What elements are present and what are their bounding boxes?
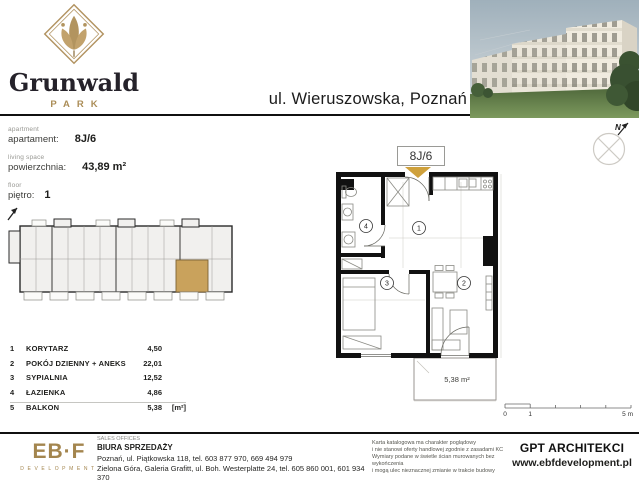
- field-apartment: apartment apartament: 8J/6: [8, 126, 208, 145]
- room-area: 12,52: [128, 373, 162, 382]
- apartment-info: apartment apartament: 8J/6 living space …: [8, 126, 208, 210]
- building-photo: [470, 0, 639, 118]
- room-marker-3-label: 3: [385, 281, 389, 288]
- sofa: [432, 308, 460, 350]
- bathroom-fixtures: [342, 186, 357, 247]
- room-name: ŁAZIENKA: [26, 388, 128, 397]
- room-name: SYPIALNIA: [26, 373, 128, 382]
- room-area: 4,86: [128, 388, 162, 397]
- field-label-en: living space: [8, 154, 208, 161]
- room-no: 4: [10, 388, 26, 397]
- website-link[interactable]: www.ebfdevelopment.pl: [512, 457, 632, 469]
- bed: [343, 278, 375, 330]
- brand-diamond-icon: [42, 2, 106, 66]
- table-row: 2 POKÓJ DZIENNY + ANEKS 22,01: [10, 359, 186, 374]
- north-arrow-icon: [8, 208, 17, 220]
- apartment-number-value: 8J/6: [75, 133, 96, 145]
- developer-logo: EB·F DEVELOPMENT: [20, 440, 98, 472]
- field-floor: floor piętro: 1: [8, 182, 208, 201]
- header-divider: [0, 114, 471, 116]
- room-area: 4,50: [128, 344, 162, 353]
- balcony-door: [441, 327, 469, 355]
- room-area: 22,01: [128, 359, 162, 368]
- table-row: 1 KORYTARZ 4,50: [10, 344, 186, 359]
- field-label-en: apartment: [8, 126, 208, 133]
- room-name: BALKON: [26, 403, 128, 412]
- room-unit: [m²]: [162, 403, 186, 412]
- sales-label-en: SALES OFFICES: [97, 436, 367, 442]
- room-marker-1-label: 1: [417, 226, 421, 233]
- dining-table: [433, 266, 457, 299]
- building-floor-overview: [4, 204, 240, 312]
- room-no: 1: [10, 344, 26, 353]
- field-living-space: living space powierzchnia: 43,89 m²: [8, 154, 208, 173]
- field-label-pl: powierzchnia:: [8, 162, 66, 173]
- kitchen-counter: [433, 177, 493, 190]
- catalog-card-page: Grunwald PARK ul. Wieruszowska, Poznań: [0, 0, 639, 480]
- balcony-area-label: 5,38 m²: [444, 375, 470, 384]
- coffee-table: [450, 310, 467, 334]
- room-name: KORYTARZ: [26, 344, 128, 353]
- table-row: 5 BALKON 5,38 [m²]: [10, 402, 186, 418]
- scale-tick-0: 0: [503, 411, 507, 418]
- unit-label: 8J/6: [397, 146, 445, 166]
- room-name: POKÓJ DZIENNY + ANEKS: [26, 359, 128, 368]
- sales-label-pl: BIURA SPRZEDAŻY: [97, 443, 367, 452]
- disclaimer-line: Karta katalogowa ma charakter poglądowy: [372, 440, 514, 447]
- radiator: [486, 276, 492, 310]
- wardrobe: [387, 178, 409, 206]
- disclaimer-line: i mogą ulec nieznacznej zmianie w trakci…: [372, 468, 514, 475]
- field-label-en: floor: [8, 182, 208, 189]
- room-no: 5: [10, 403, 26, 412]
- scale-tick-5m: 5 m: [622, 411, 633, 418]
- field-label-pl: piętro:: [8, 190, 34, 201]
- highlighted-unit[interactable]: [176, 260, 208, 292]
- developer-logo-text: EB·F: [20, 440, 98, 464]
- apartment-floor-plan: 5,38 m²: [333, 168, 503, 406]
- compass-icon: N: [588, 118, 634, 170]
- compass-north-label: N: [615, 123, 621, 132]
- disclaimer-line: i nie stanowi oferty handlowej zgodnie z…: [372, 447, 514, 454]
- brand-logo: Grunwald PARK: [8, 2, 140, 110]
- room-no: 2: [10, 359, 26, 368]
- sales-offices: SALES OFFICES BIURA SPRZEDAŻY Poznań, ul…: [97, 436, 367, 480]
- table-row: 3 SYPIALNIA 12,52: [10, 373, 186, 388]
- room-marker-2-label: 2: [462, 281, 466, 288]
- disclaimer-line: Wymiary podane w świetle ścian murowanyc…: [372, 454, 514, 468]
- room-no: 3: [10, 373, 26, 382]
- sales-address-zielona-gora: Zielona Góra, Galeria Grafitt, ul. Boh. …: [97, 464, 367, 480]
- brand-name: Grunwald: [8, 68, 140, 97]
- scale-tick-1: 1: [528, 411, 532, 418]
- rooms-table: 1 KORYTARZ 4,50 2 POKÓJ DZIENNY + ANEKS …: [10, 344, 186, 418]
- bedroom-closet: [343, 336, 381, 349]
- table-row: 4 ŁAZIENKA 4,86: [10, 388, 186, 403]
- brand-subtitle: PARK: [8, 99, 140, 110]
- balcony: 5,38 m²: [414, 358, 496, 400]
- footer-divider: [0, 432, 639, 434]
- legal-disclaimer: Karta katalogowa ma charakter poglądowy …: [372, 440, 514, 475]
- developer-logo-subtext: DEVELOPMENT: [20, 466, 98, 472]
- living-space-value: 43,89 m²: [82, 161, 126, 173]
- architect-name: GPT ARCHITEKCI: [512, 441, 632, 455]
- sales-address-poznan: Poznań, ul. Piątkowska 118, tel. 603 877…: [97, 454, 367, 464]
- hall-closet: [342, 259, 362, 269]
- floor-value: 1: [44, 189, 50, 201]
- project-address: ul. Wieruszowska, Poznań: [269, 90, 467, 109]
- room-area: 5,38: [128, 403, 162, 412]
- scale-bar: 0 1 5 m: [501, 399, 635, 419]
- architect-block: GPT ARCHITEKCI www.ebfdevelopment.pl: [512, 441, 632, 469]
- field-label-pl: apartament:: [8, 134, 59, 145]
- room-marker-4-label: 4: [364, 224, 368, 231]
